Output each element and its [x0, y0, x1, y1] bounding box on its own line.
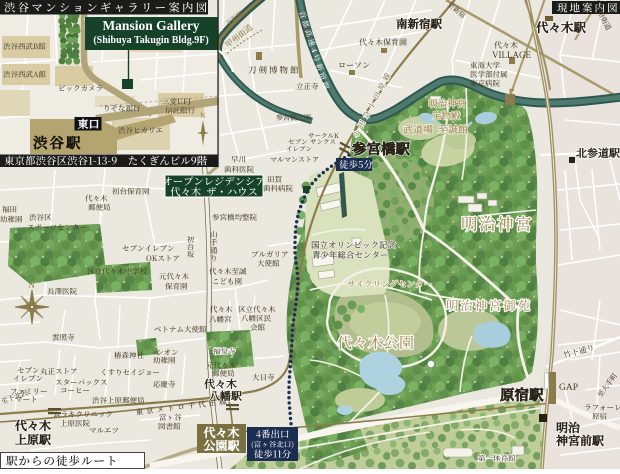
- svg-text:(Shibuya Takugin Bldg.9F): (Shibuya Takugin Bldg.9F): [93, 35, 208, 46]
- svg-text:VILLAGE: VILLAGE: [492, 50, 531, 60]
- svg-text:Mansion Gallery: Mansion Gallery: [102, 18, 199, 33]
- svg-text:GAP: GAP: [559, 383, 578, 393]
